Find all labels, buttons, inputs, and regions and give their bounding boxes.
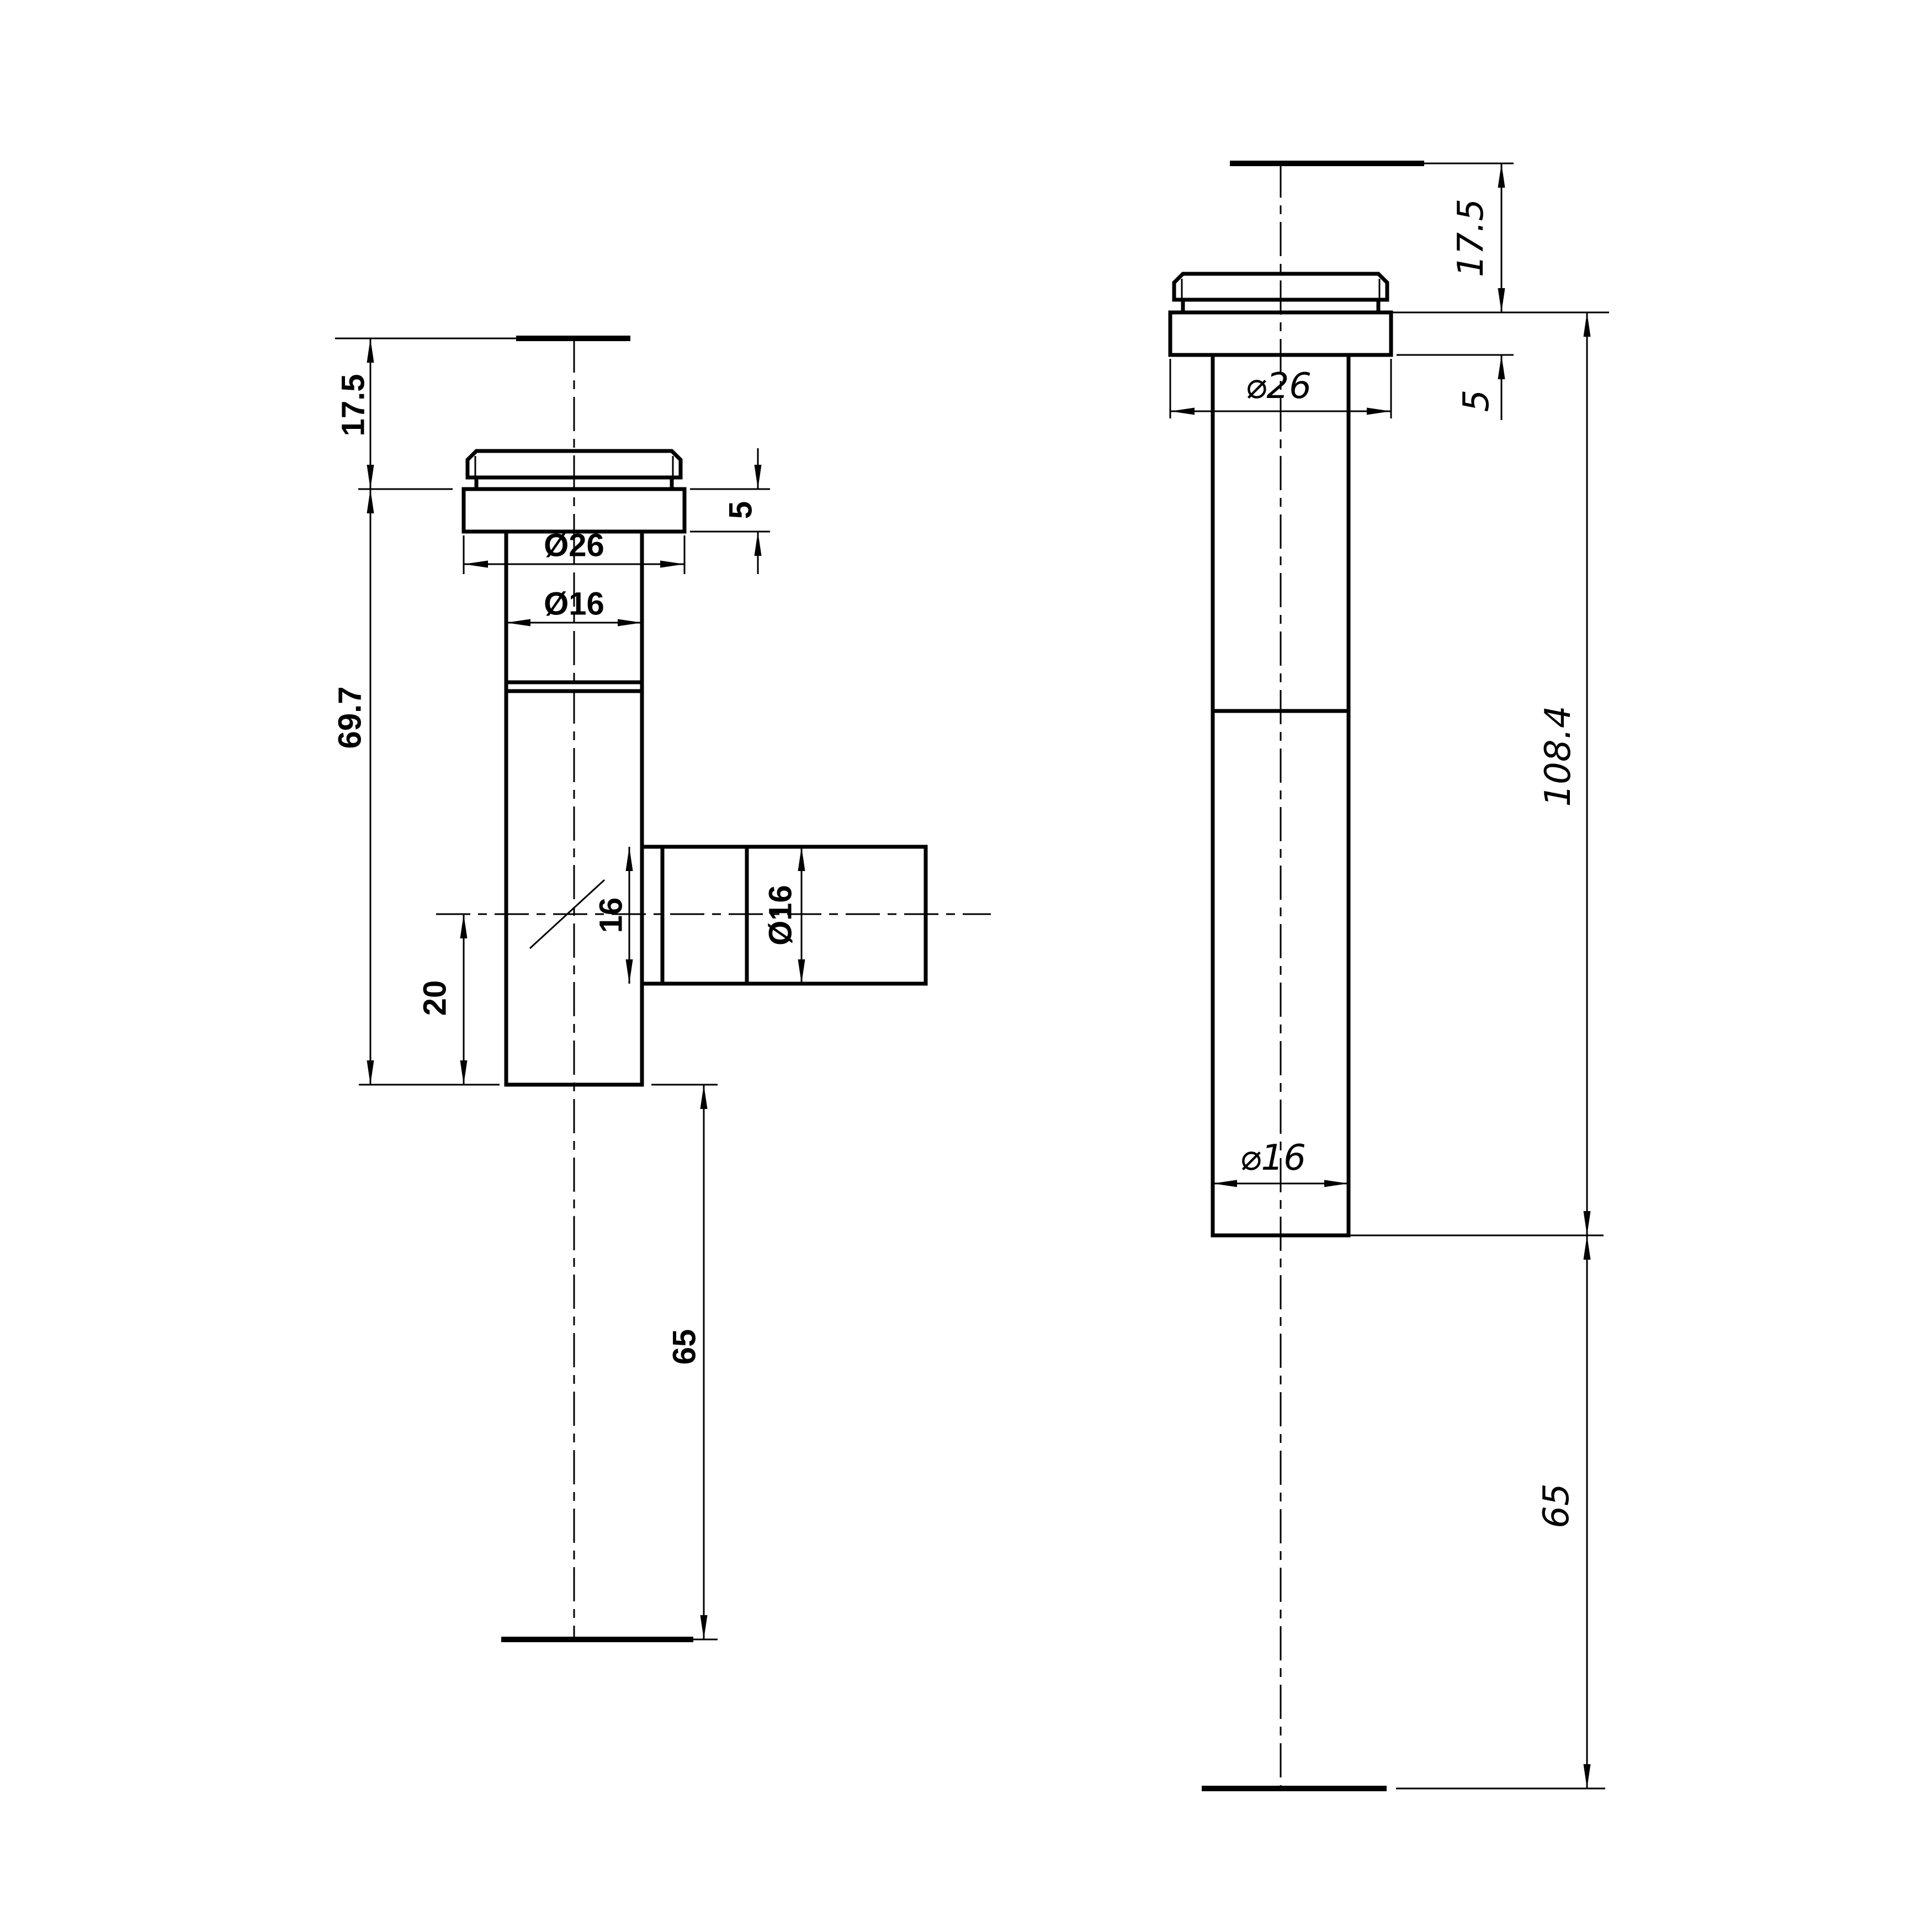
technical-drawing: 17.5 69.7 Ø26 Ø16 5 16 Ø16 20 65 — [0, 0, 1932, 1932]
dim-label-flange-diameter: Ø26 — [544, 528, 604, 564]
dim-label-branch-bore: 16 — [593, 898, 629, 933]
side-view: 17.5 5 ⌀26 108.4 ⌀16 65 — [1170, 163, 1609, 1788]
dim-label-flange-thickness: 5 — [1456, 390, 1497, 412]
dim-label-flange-diameter: ⌀26 — [1245, 366, 1312, 407]
drawing-page: 17.5 69.7 Ø26 Ø16 5 16 Ø16 20 65 — [0, 0, 1932, 1932]
dim-label-flange-thickness: 5 — [723, 501, 759, 519]
dim-label-body-length: 69.7 — [332, 687, 368, 749]
dim-label-tail-length: 65 — [667, 1329, 703, 1365]
dim-label-cap-height: 17.5 — [1451, 199, 1492, 278]
dim-label-body-diameter: ⌀16 — [1240, 1138, 1306, 1179]
dim-label-branch-diameter: Ø16 — [763, 885, 799, 946]
dim-label-overall-length: 108.4 — [1538, 705, 1579, 806]
front-view: 17.5 69.7 Ø26 Ø16 5 16 Ø16 20 65 — [332, 338, 991, 1639]
dim-label-body-diameter: Ø16 — [544, 586, 604, 622]
dim-label-branch-offset: 20 — [417, 980, 453, 1016]
dim-label-tail-length: 65 — [1536, 1483, 1577, 1528]
dim-label-cap-height: 17.5 — [336, 374, 371, 437]
